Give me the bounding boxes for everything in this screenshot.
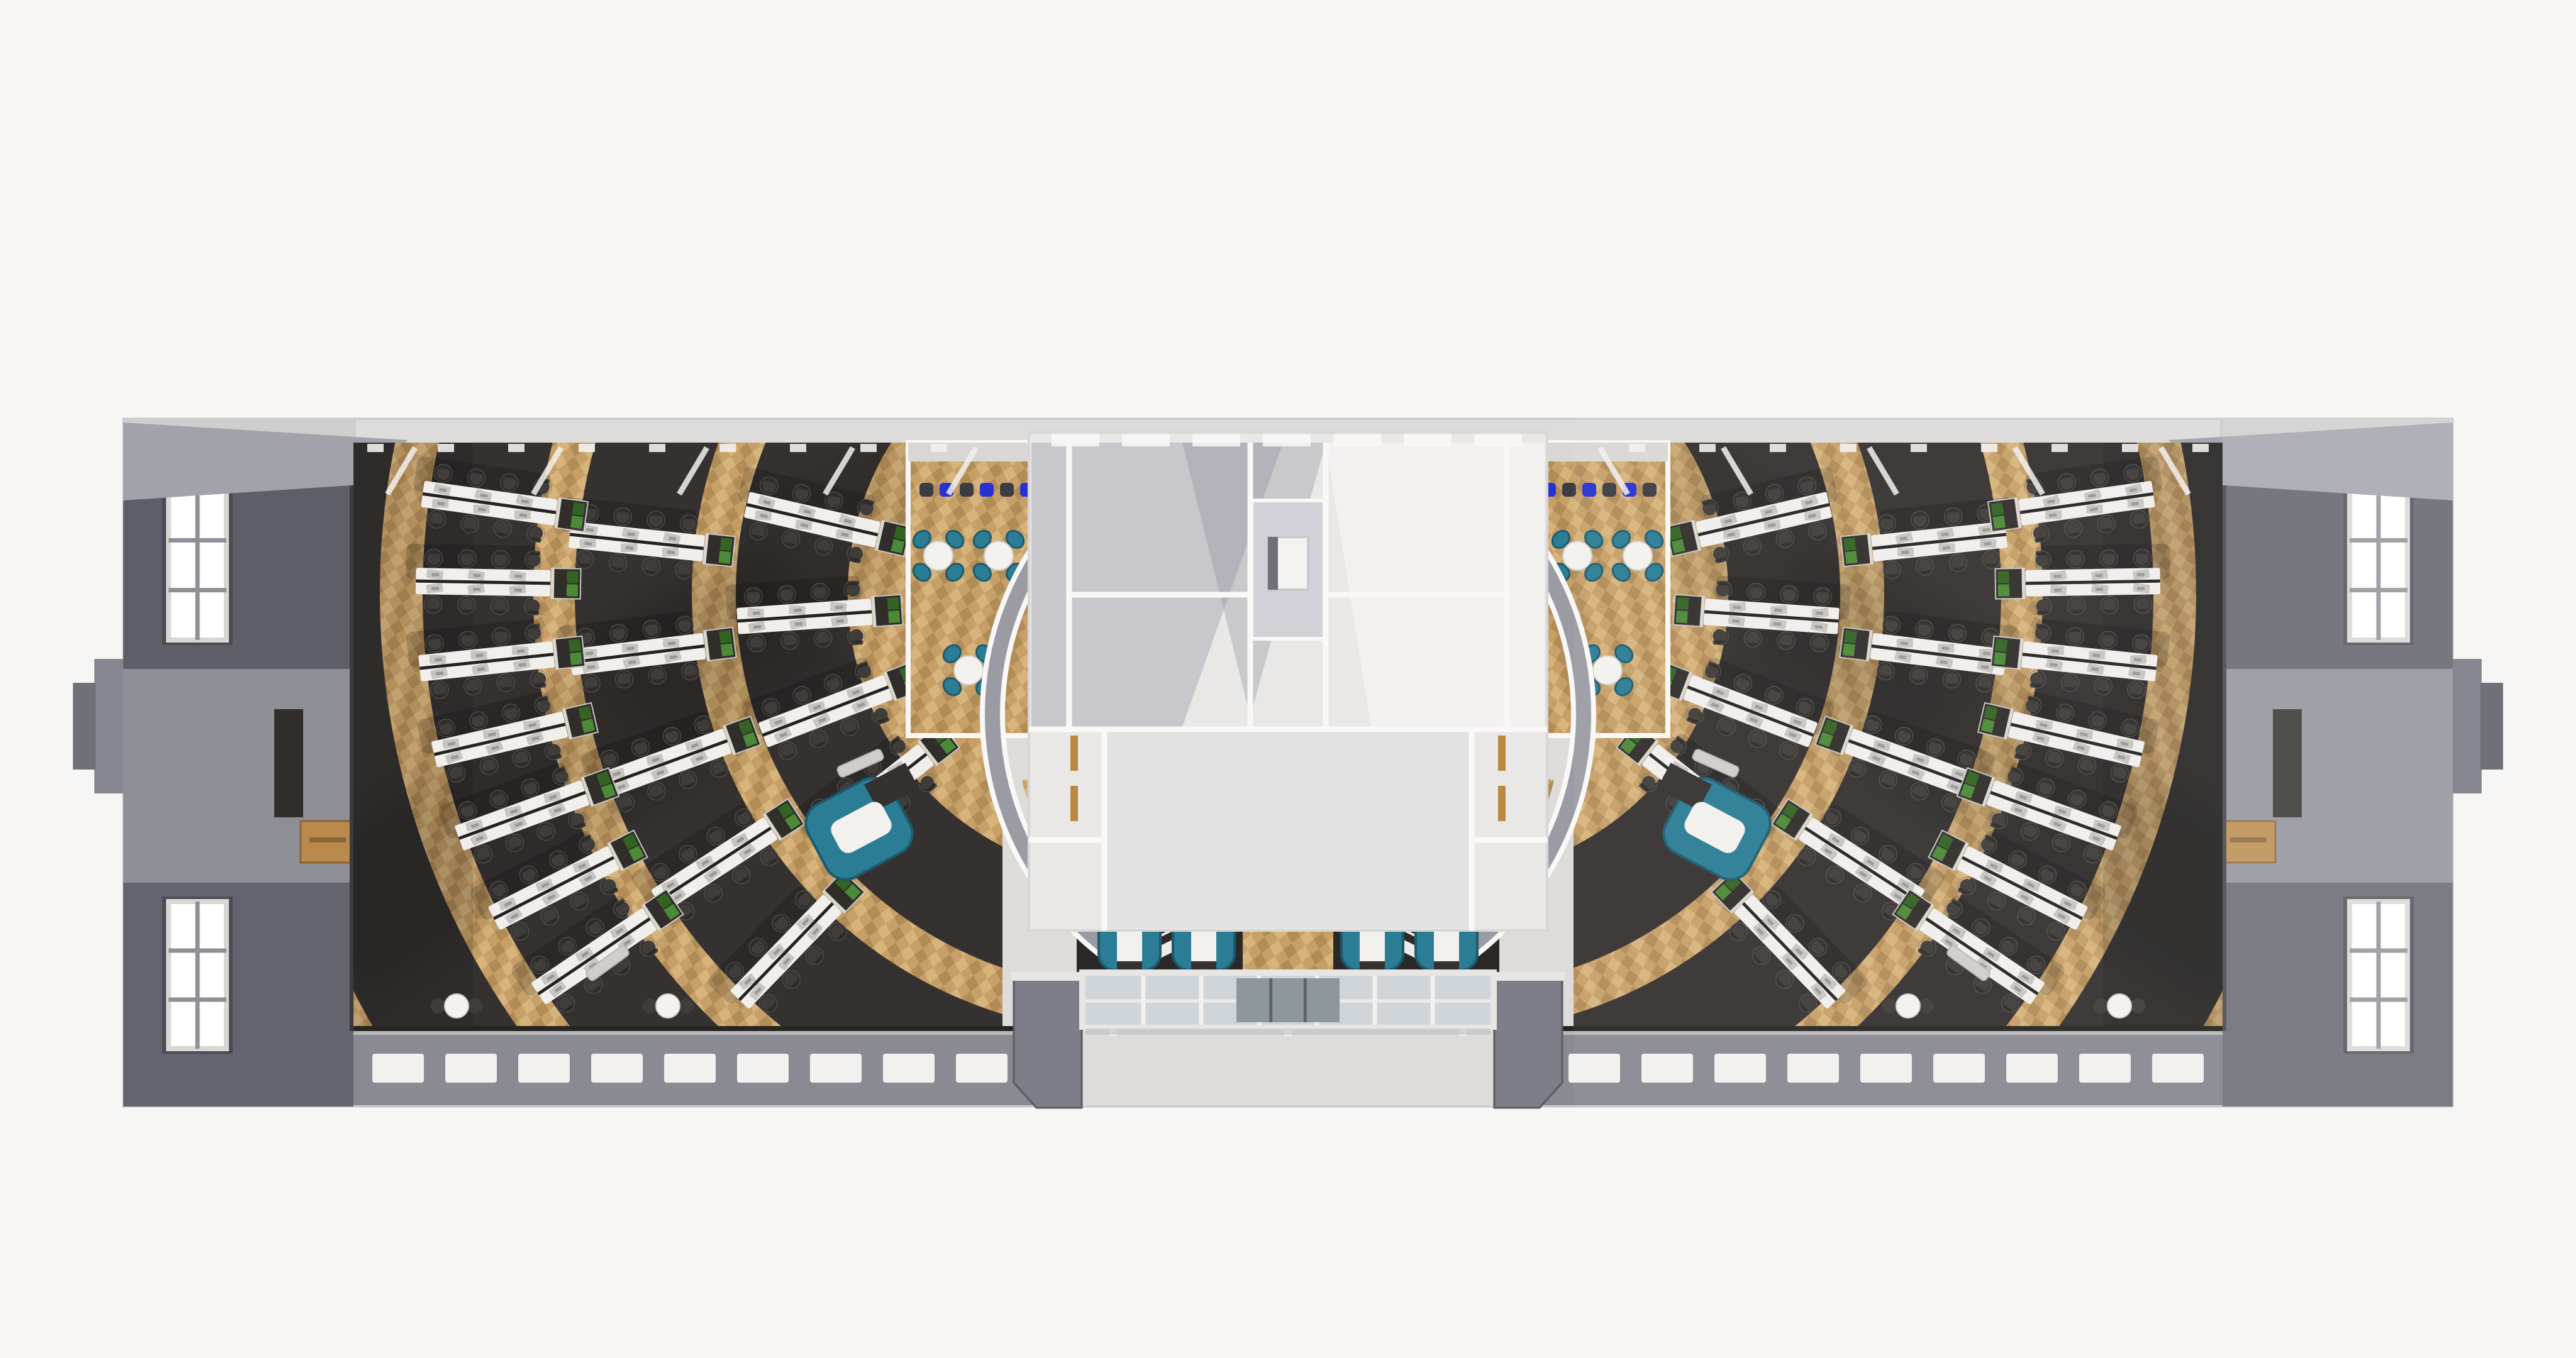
entrance-side-wall (1014, 978, 1082, 1108)
keyboard (753, 625, 761, 629)
exterior-annex (94, 659, 123, 793)
plant (1676, 610, 1688, 623)
chair-back (461, 549, 474, 554)
round-table (1623, 541, 1652, 570)
clerestory-slot (1787, 1054, 1839, 1083)
core-wood-door (1070, 786, 1078, 821)
chair-back (2136, 549, 2148, 553)
keyboard (1774, 622, 1781, 626)
counter-stool (919, 483, 933, 497)
ceiling-tick (2192, 444, 2209, 452)
plant (720, 538, 733, 551)
keyboard (473, 588, 480, 591)
storage-cabinet (2273, 709, 2302, 817)
floor-seam (353, 1026, 1035, 1031)
side-wall-cap (1011, 972, 1084, 981)
plant (1845, 551, 1858, 564)
keyboard (795, 622, 802, 626)
chair-back (528, 551, 540, 555)
plant (569, 639, 581, 652)
office-chair (458, 549, 476, 567)
core-wood-door (1498, 786, 1506, 821)
ceiling-tick (367, 444, 384, 452)
chair-back (426, 609, 439, 613)
ceiling-tick (649, 444, 665, 452)
office-chair (524, 597, 541, 615)
chair-back (428, 549, 440, 553)
cabinet-edge (551, 568, 555, 599)
plant (1994, 652, 2006, 665)
floorplan-render (0, 0, 2576, 1358)
keyboard (794, 609, 801, 612)
office-chair (2101, 596, 2118, 614)
plant (1843, 538, 1856, 551)
ceiling-tick (790, 444, 806, 452)
keyboard (473, 574, 480, 577)
counter-stool (980, 483, 994, 497)
clerestory-slot (737, 1054, 789, 1083)
plant (887, 597, 899, 610)
sofa-front-opening (1117, 961, 1142, 970)
cafe-table-top (2107, 994, 2131, 1018)
cafe-chair (2094, 998, 2109, 1013)
cafe-chair (642, 998, 657, 1013)
counter-stool (1582, 483, 1596, 497)
bottom-wall-sill (353, 1031, 1035, 1035)
end-lower-room (123, 883, 353, 1107)
keyboard (514, 588, 522, 592)
keyboard (753, 611, 760, 615)
plant (1998, 584, 2009, 596)
clerestory-slot (2006, 1054, 2058, 1083)
keyboard (1816, 611, 1823, 615)
facade-window (162, 485, 233, 645)
office-chair (2134, 595, 2151, 613)
keyboard (431, 573, 439, 577)
clerestory-slot (2152, 1054, 2204, 1083)
keyboard (2096, 574, 2103, 577)
core-wood-door (1070, 736, 1078, 771)
chair-back (2102, 549, 2115, 554)
entrance-doors (1236, 978, 1340, 1022)
counter-stool (1562, 483, 1576, 497)
ceiling-tick (860, 444, 877, 452)
clerestory-slot (372, 1054, 424, 1083)
reception-desk-slot (2230, 837, 2267, 842)
service-core (1029, 433, 1547, 930)
keyboard (2054, 575, 2062, 578)
ceiling-tick (1981, 444, 1997, 452)
chair-back (2069, 550, 2082, 555)
office-chair (2033, 551, 2051, 568)
keyboard (836, 619, 844, 623)
elevator-door-notch (1268, 537, 1278, 590)
round-table (954, 656, 983, 685)
clerestory-slot (1860, 1054, 1912, 1083)
office-floorplan-figure (0, 0, 2576, 1358)
ceiling-tick (508, 444, 525, 452)
office-chair (2034, 597, 2051, 615)
core-skylight (1192, 434, 1240, 446)
cafe-table-top (445, 994, 469, 1018)
ceiling-tick (1629, 444, 1645, 452)
plant (567, 584, 578, 596)
clerestory-slot (883, 1054, 935, 1083)
core-skylight (1122, 434, 1170, 446)
core-skylight (1333, 434, 1381, 446)
core-skylight (1263, 434, 1311, 446)
round-table (924, 541, 953, 570)
clerestory-slot (810, 1054, 862, 1083)
cafe-table-top (656, 994, 680, 1018)
office-chair (2100, 549, 2118, 567)
round-table (984, 541, 1013, 570)
keyboard (2096, 588, 2103, 591)
keyboard (1815, 625, 1823, 629)
plant (1843, 643, 1855, 656)
ceiling-tick (931, 444, 947, 452)
round-table (1563, 541, 1592, 570)
facade-window (2343, 897, 2414, 1054)
office-chair (491, 597, 508, 614)
ceiling-tick (1840, 444, 1857, 452)
chair-back (2104, 609, 2116, 614)
storage-cabinet (274, 709, 303, 817)
plant (1844, 630, 1857, 643)
plant (572, 502, 585, 516)
cafe-chair (431, 998, 446, 1013)
office-chair (525, 551, 543, 568)
plant (1995, 639, 2007, 652)
side-wall-cap (1492, 972, 1565, 981)
counter-stool (1602, 483, 1616, 497)
sofa-front-opening (1434, 961, 1459, 970)
entrance-side-wall (1494, 978, 1562, 1108)
office-chair (425, 549, 443, 566)
keyboard (2137, 587, 2145, 590)
plant (1993, 516, 2006, 529)
cafe-chair (467, 998, 482, 1013)
ceiling-tick (1911, 444, 1927, 452)
plant (888, 610, 900, 623)
keyboard (514, 575, 522, 578)
sofa-front-opening (1360, 961, 1385, 970)
chair-back (2036, 551, 2048, 555)
core-skylight (1404, 434, 1452, 446)
chair-back (460, 609, 472, 614)
keyboard (835, 605, 843, 609)
counter-stool (960, 483, 974, 497)
plant (570, 652, 582, 665)
cafe-chair (1882, 998, 1897, 1013)
sofa-front-opening (1191, 961, 1216, 970)
clerestory-slot (2079, 1054, 2131, 1083)
cafe-chair (679, 998, 694, 1013)
office-chair (492, 550, 509, 568)
office-chair (2067, 597, 2085, 614)
ceiling-tick (438, 444, 454, 452)
ceiling-tick (2051, 444, 2068, 452)
chair-back (493, 610, 506, 614)
plant (567, 571, 578, 583)
clerestory-slot (1641, 1054, 1693, 1083)
core-skylight (1474, 434, 1522, 446)
exterior-annex (73, 683, 96, 770)
keyboard (431, 587, 439, 590)
office-chair (424, 595, 441, 613)
ceiling-tick (2122, 444, 2138, 452)
plant (1991, 502, 2004, 516)
end-lower-room (2223, 883, 2453, 1107)
ceiling-tick (719, 444, 736, 452)
facade-window (162, 897, 233, 1054)
exterior-annex (2453, 659, 2482, 793)
core-skylight (1052, 434, 1099, 446)
clerestory-slot (591, 1054, 643, 1083)
chair-back (494, 550, 507, 555)
plant (1677, 597, 1689, 610)
chair-back (526, 610, 539, 615)
cafe-chair (2130, 998, 2145, 1013)
keyboard (2054, 588, 2062, 592)
office-chair (457, 596, 475, 614)
clerestory-slot (445, 1054, 497, 1083)
canopy-ground-shadow (1085, 1029, 1491, 1035)
counter-stool (1000, 483, 1014, 497)
chair-back (2037, 610, 2050, 615)
core-wood-door (1498, 736, 1506, 771)
plant (1998, 571, 2009, 583)
clerestory-slot (1714, 1054, 1766, 1083)
round-table (1593, 656, 1622, 685)
plant (719, 630, 731, 643)
clerestory-slot (1568, 1054, 1620, 1083)
reception-desk-slot (309, 837, 346, 842)
plant (721, 643, 733, 656)
core-lower-zone (1107, 732, 1469, 928)
clerestory-slot (1933, 1054, 1985, 1083)
office-chair (2067, 550, 2084, 568)
cabinet-edge (2021, 568, 2025, 599)
office-chair (2133, 549, 2151, 566)
clerestory-slot (956, 1054, 1008, 1083)
clerestory-slot (518, 1054, 570, 1083)
ceiling-tick (579, 444, 595, 452)
cafe-table-top (1896, 994, 1920, 1018)
counter-stool (1643, 483, 1657, 497)
chair-back (2137, 609, 2150, 613)
floor-seam (1541, 1026, 2223, 1031)
keyboard (1732, 619, 1740, 623)
ceiling-tick (1770, 444, 1786, 452)
facade-window (2343, 485, 2414, 645)
plant (570, 516, 583, 529)
keyboard (1733, 605, 1740, 609)
plant (719, 551, 731, 564)
floorplan-svg (0, 0, 2576, 1358)
cafe-chair (1919, 998, 1934, 1013)
exterior-annex (2480, 683, 2503, 770)
chair-back (2070, 610, 2083, 614)
bottom-wall-sill (1541, 1031, 2223, 1035)
clerestory-slot (664, 1054, 716, 1083)
ceiling-tick (1699, 444, 1716, 452)
keyboard (1774, 609, 1782, 612)
keyboard (2137, 573, 2145, 577)
